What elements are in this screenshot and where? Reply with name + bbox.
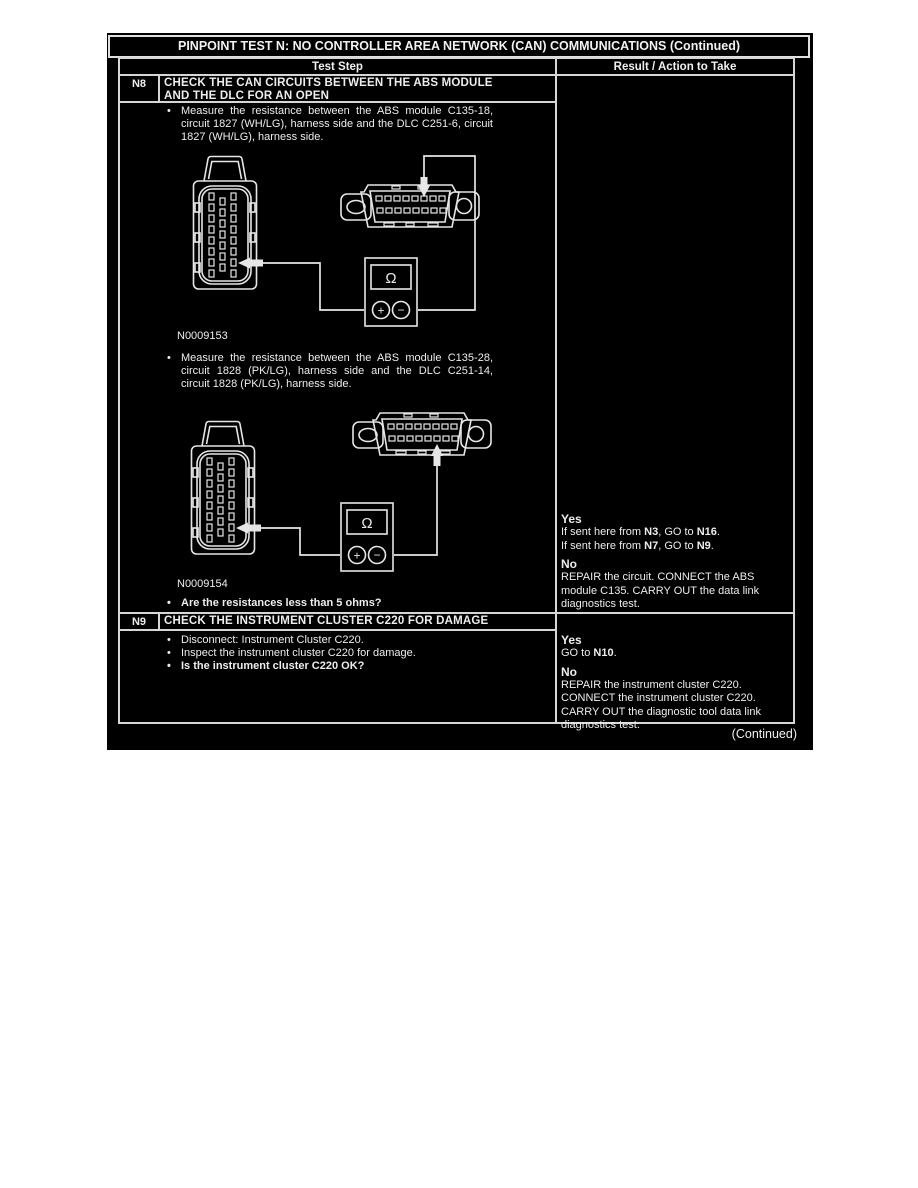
step-id-n9: N9	[120, 615, 158, 629]
ohm-symbol: Ω	[385, 270, 396, 287]
bullet-icon: •	[167, 634, 171, 647]
abs-module-connector-icon	[194, 157, 257, 290]
no-label: No	[561, 557, 793, 571]
bullet-icon: •	[167, 647, 171, 660]
test-table: Test Step Result / Action to Take N8 CHE…	[118, 57, 795, 724]
n9-title-divider	[120, 629, 555, 631]
dlc-connector-icon	[353, 413, 491, 455]
n9-bullet-inspect: • Inspect the instrument cluster C220 fo…	[165, 647, 541, 660]
n8-bullet-measure2: • Measure the resistance between the ABS…	[165, 352, 493, 391]
no-action: REPAIR the instrument cluster C220. CONN…	[561, 679, 793, 733]
n8-question: • Are the resistances less than 5 ohms?	[165, 597, 511, 610]
document-page: PINPOINT TEST N: NO CONTROLLER AREA NETW…	[0, 0, 918, 1188]
yes-line: GO to N10.	[561, 647, 793, 661]
abs-module-connector-icon	[192, 422, 255, 555]
bullet-icon: •	[167, 660, 171, 673]
no-action: REPAIR the circuit. CONNECT the ABS modu…	[561, 571, 793, 612]
n8-id-divider	[158, 74, 160, 103]
n9-question: • Is the instrument cluster C220 OK?	[165, 660, 541, 673]
dlc-connector-icon	[341, 185, 479, 227]
n9-result: Yes GO to N10. No REPAIR the instrument …	[561, 633, 793, 733]
yes-line: If sent here from N7, GO to N9.	[561, 540, 793, 554]
step-id-n8: N8	[120, 77, 158, 91]
plus-terminal: +	[353, 549, 360, 563]
test-lead-wires	[262, 156, 475, 310]
n8-bullet-measure1: • Measure the resistance between the ABS…	[165, 105, 493, 144]
n9-bullet-disconnect: • Disconnect: Instrument Cluster C220.	[165, 634, 541, 647]
ohmmeter-icon: Ω + −	[365, 258, 417, 326]
column-divider	[555, 59, 557, 722]
ohmmeter-icon: Ω + −	[341, 503, 393, 571]
bullet-icon: •	[167, 105, 171, 118]
minus-terminal: −	[397, 303, 404, 317]
n9-id-divider	[158, 612, 160, 631]
minus-terminal: −	[373, 548, 380, 562]
ohm-symbol: Ω	[361, 515, 372, 532]
bullet-icon: •	[167, 597, 171, 610]
figure-n0009153: Ω + −	[162, 147, 492, 345]
figure1-label: N0009153	[177, 330, 228, 342]
bullet-icon: •	[167, 352, 171, 365]
plus-terminal: +	[377, 304, 384, 318]
step-title-n8: CHECK THE CAN CIRCUITS BETWEEN THE ABS M…	[164, 77, 514, 103]
figure2-label: N0009154	[177, 578, 228, 590]
figure-n0009154: Ω + −	[162, 400, 492, 585]
yes-label: Yes	[561, 512, 793, 526]
result-header: Result / Action to Take	[557, 59, 793, 74]
test-step-header: Test Step	[120, 59, 555, 74]
pinpoint-test-title: PINPOINT TEST N: NO CONTROLLER AREA NETW…	[108, 35, 810, 58]
no-label: No	[561, 665, 793, 679]
yes-line: If sent here from N3, GO to N16.	[561, 526, 793, 540]
continued-note: (Continued)	[732, 727, 797, 741]
step-title-n9: CHECK THE INSTRUMENT CLUSTER C220 FOR DA…	[164, 615, 549, 628]
pinpoint-test-panel: PINPOINT TEST N: NO CONTROLLER AREA NETW…	[107, 33, 813, 750]
probe-arrows	[236, 444, 443, 534]
yes-label: Yes	[561, 633, 793, 647]
n8-n9-divider	[120, 612, 793, 614]
n8-result: Yes If sent here from N3, GO to N16. If …	[561, 512, 793, 612]
